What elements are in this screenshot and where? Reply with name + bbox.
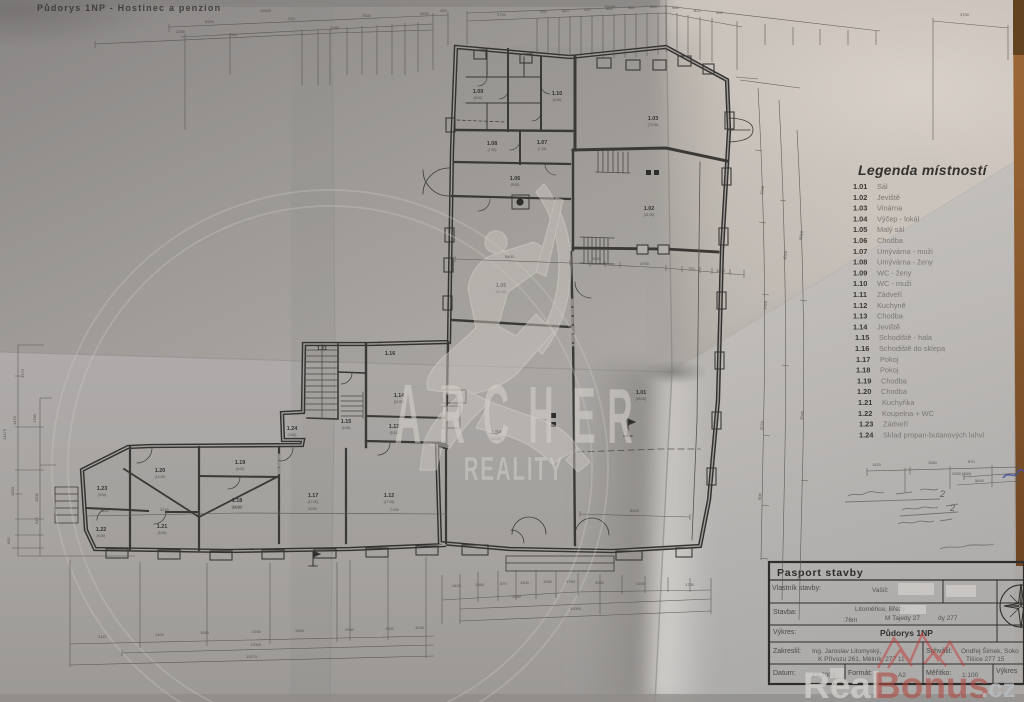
svg-text:1860: 1860 <box>10 486 15 496</box>
svg-text:1000: 1000 <box>592 256 602 261</box>
svg-text:C: C <box>483 367 510 461</box>
svg-text:(4.00): (4.00) <box>97 534 106 538</box>
svg-text:1.08: 1.08 <box>853 258 867 267</box>
svg-text:Chodba: Chodba <box>877 236 904 245</box>
svg-text:1.05: 1.05 <box>853 225 867 234</box>
svg-text:Jeviště: Jeviště <box>877 322 900 331</box>
svg-text:1750: 1750 <box>566 579 576 584</box>
svg-text:1500: 1500 <box>295 628 305 633</box>
svg-text:900: 900 <box>757 492 763 500</box>
svg-text:3700: 3700 <box>497 12 507 17</box>
svg-text:A: A <box>395 367 422 461</box>
svg-text:(72.00): (72.00) <box>648 123 659 127</box>
svg-text:1.01: 1.01 <box>636 390 647 396</box>
svg-text:900: 900 <box>716 10 723 15</box>
svg-text:Koupelna + WC: Koupelna + WC <box>882 409 935 418</box>
svg-text:Výkres:: Výkres: <box>773 629 796 636</box>
svg-text:1.23: 1.23 <box>97 486 108 492</box>
svg-text:Sál: Sál <box>877 182 888 191</box>
svg-text:(5.00): (5.00) <box>474 96 483 100</box>
svg-text:1.17: 1.17 <box>308 493 319 499</box>
svg-text:19520: 19520 <box>260 8 272 13</box>
svg-text:1.15: 1.15 <box>341 419 352 425</box>
svg-text:1.20: 1.20 <box>857 387 871 396</box>
svg-text:1.09: 1.09 <box>473 89 484 95</box>
svg-text:(6.00): (6.00) <box>236 467 245 471</box>
svg-text:5640: 5640 <box>975 478 985 483</box>
svg-text:1.06: 1.06 <box>510 176 521 182</box>
svg-text:(3.50): (3.50) <box>288 433 297 437</box>
svg-text:750: 750 <box>688 266 695 271</box>
svg-text:Vinárna: Vinárna <box>877 204 903 213</box>
svg-text:1.06: 1.06 <box>853 236 867 245</box>
svg-text:Vašíč: Vašíč <box>872 587 889 594</box>
svg-text:Kuchyňka: Kuchyňka <box>882 398 915 407</box>
svg-text:R: R <box>439 367 466 461</box>
svg-text:1540: 1540 <box>200 630 210 635</box>
svg-text:1.09: 1.09 <box>853 268 867 277</box>
svg-text:(3.00): (3.00) <box>98 493 107 497</box>
svg-text:620: 620 <box>694 8 701 13</box>
svg-text:1420: 1420 <box>872 462 882 467</box>
svg-text:1.03: 1.03 <box>853 204 867 213</box>
svg-text:Datum:: Datum: <box>773 670 796 677</box>
svg-text:2980: 2980 <box>345 627 355 632</box>
svg-text:R: R <box>607 372 632 460</box>
svg-text:1.02: 1.02 <box>853 193 867 202</box>
svg-text:1.02: 1.02 <box>644 206 655 212</box>
svg-text:930: 930 <box>288 16 295 21</box>
svg-text:WC - muži: WC - muži <box>877 279 912 288</box>
svg-text:1780: 1780 <box>32 413 37 423</box>
svg-text:2060: 2060 <box>595 580 605 585</box>
svg-text:Chodba: Chodba <box>877 312 904 321</box>
svg-text:Umývárna - ženy: Umývárna - ženy <box>877 258 933 267</box>
svg-text:5140: 5140 <box>796 570 802 580</box>
svg-text:17000: 17000 <box>250 642 262 647</box>
svg-text:1.11: 1.11 <box>853 290 867 299</box>
svg-text:1.16: 1.16 <box>385 351 396 357</box>
svg-text:H: H <box>528 370 553 461</box>
svg-text:Zádveří: Zádveří <box>883 420 909 429</box>
svg-text:2: 2 <box>949 503 955 513</box>
svg-text:Pasport stavby: Pasport stavby <box>777 567 863 579</box>
svg-text:Sklad propan-butanových lahví: Sklad propan-butanových lahví <box>883 430 985 439</box>
svg-text:1.10: 1.10 <box>552 91 563 97</box>
svg-text:1.15: 1.15 <box>855 333 869 342</box>
svg-text:Půdorys 1NP - Hostinec a penzi: Půdorys 1NP - Hostinec a penzion <box>37 3 221 13</box>
svg-text:(17.00): (17.00) <box>308 500 319 504</box>
svg-text:660: 660 <box>562 8 569 13</box>
svg-text:1.10: 1.10 <box>853 279 867 288</box>
svg-text:Vlastník stavby:: Vlastník stavby: <box>772 585 821 592</box>
svg-text:M Tajedy 27: M Tajedy 27 <box>885 615 920 622</box>
svg-text:1.24: 1.24 <box>859 430 874 439</box>
svg-text:7100: 7100 <box>390 507 400 512</box>
svg-text:1.21: 1.21 <box>157 524 168 530</box>
svg-text:Půdorys 1NP: Půdorys 1NP <box>880 628 933 638</box>
svg-text:1640: 1640 <box>100 508 110 513</box>
svg-text:Výčep - lokál: Výčep - lokál <box>877 214 920 223</box>
svg-text:1.21: 1.21 <box>858 398 872 407</box>
svg-text:Ondřej Šimek, Soko: Ondřej Šimek, Soko <box>961 646 1019 655</box>
svg-text:1.11: 1.11 <box>317 346 327 352</box>
svg-text:7500: 7500 <box>362 13 372 18</box>
svg-text:1400: 1400 <box>155 632 165 637</box>
svg-text:(9.00): (9.00) <box>158 531 167 535</box>
svg-text:Malý sál: Malý sál <box>877 225 904 234</box>
svg-text:1.17: 1.17 <box>856 355 870 364</box>
svg-text:dy 277: dy 277 <box>938 615 958 622</box>
svg-text:1000: 1000 <box>34 492 39 502</box>
svg-text:2160: 2160 <box>252 629 262 634</box>
svg-text:1.08: 1.08 <box>487 141 498 147</box>
svg-text:E: E <box>572 372 596 461</box>
svg-text:400: 400 <box>440 8 447 13</box>
svg-text:Legenda místností: Legenda místností <box>858 162 989 178</box>
svg-text:3110: 3110 <box>98 634 107 639</box>
svg-text:1400: 1400 <box>520 580 530 585</box>
svg-text:1.07: 1.07 <box>853 247 867 256</box>
svg-text:1500: 1500 <box>385 626 395 631</box>
svg-text:(7.50): (7.50) <box>488 148 497 152</box>
svg-text:1.18: 1.18 <box>856 366 870 375</box>
svg-text:Chodba: Chodba <box>881 387 908 396</box>
svg-text:(7.10): (7.10) <box>538 147 547 151</box>
svg-text:720: 720 <box>230 32 237 37</box>
svg-text:1.01: 1.01 <box>853 182 867 191</box>
svg-text:1560: 1560 <box>928 460 938 465</box>
svg-text:2530: 2530 <box>420 11 430 16</box>
svg-text:945: 945 <box>34 517 39 524</box>
svg-text:870: 870 <box>500 581 507 586</box>
svg-text:600: 600 <box>6 537 11 544</box>
svg-text:1470: 1470 <box>12 415 17 425</box>
svg-text:3240: 3240 <box>160 507 170 512</box>
svg-text:1.13: 1.13 <box>853 312 867 321</box>
svg-text:1.12: 1.12 <box>853 301 867 310</box>
svg-text:2280: 2280 <box>176 29 186 34</box>
svg-text:(14.00): (14.00) <box>155 475 166 479</box>
svg-text:900: 900 <box>672 5 679 10</box>
svg-text:Zádveří: Zádveří <box>877 290 903 299</box>
svg-text:3170: 3170 <box>20 368 25 378</box>
svg-text:8400: 8400 <box>630 508 640 513</box>
svg-text:4700: 4700 <box>640 261 650 266</box>
svg-text:(9.00): (9.00) <box>511 183 520 187</box>
svg-text:(41.00): (41.00) <box>644 213 655 217</box>
svg-text:1.19: 1.19 <box>857 376 871 385</box>
svg-text:Bonus: Bonus <box>874 665 989 702</box>
svg-text:Tišice 277 15: Tišice 277 15 <box>966 656 1005 663</box>
svg-text:Pokoj: Pokoj <box>880 366 899 375</box>
svg-text:1.19: 1.19 <box>235 460 246 466</box>
svg-text:900: 900 <box>584 7 591 12</box>
svg-text:1.04: 1.04 <box>853 214 868 223</box>
svg-text:(17.00): (17.00) <box>384 500 395 504</box>
svg-text:870: 870 <box>968 459 975 464</box>
svg-text:WC - ženy: WC - ženy <box>877 268 912 277</box>
svg-text::76m: :76m <box>843 617 857 624</box>
svg-text:7980: 7980 <box>330 25 340 30</box>
svg-text:1.22: 1.22 <box>858 409 872 418</box>
svg-text:(5.00): (5.00) <box>342 426 351 430</box>
svg-text:1.07: 1.07 <box>537 140 548 146</box>
svg-text:Schodiště do sklepa: Schodiště do sklepa <box>879 344 946 353</box>
svg-text:1.16: 1.16 <box>855 344 869 353</box>
svg-text:5400: 5400 <box>505 254 515 259</box>
svg-text:6200: 6200 <box>205 19 215 24</box>
svg-text:14170: 14170 <box>2 428 7 440</box>
svg-text:Litoměřice, Březý: Litoměřice, Březý <box>855 606 906 613</box>
svg-text:Schodiště - hala: Schodiště - hala <box>879 333 933 342</box>
svg-text:Umývárna - muži: Umývárna - muži <box>877 247 933 256</box>
svg-text:1560: 1560 <box>475 582 485 587</box>
svg-text:19270: 19270 <box>246 654 258 659</box>
svg-text:1530: 1530 <box>543 579 553 584</box>
svg-text:(5.00): (5.00) <box>553 98 562 102</box>
svg-text:1730: 1730 <box>685 582 695 587</box>
svg-text:10000: 10000 <box>570 606 582 611</box>
svg-text:3250: 3250 <box>308 506 318 511</box>
svg-text:1.18: 1.18 <box>232 498 243 504</box>
svg-text:.cz: .cz <box>981 673 1016 702</box>
svg-text:3700: 3700 <box>960 12 970 17</box>
svg-text:2070: 2070 <box>759 420 765 430</box>
svg-text:900: 900 <box>628 5 635 10</box>
svg-text:2100: 2100 <box>636 581 646 586</box>
svg-text:2050 (850): 2050 (850) <box>952 471 972 476</box>
svg-text:1420: 1420 <box>452 583 462 588</box>
svg-text:9480: 9480 <box>512 594 522 599</box>
svg-text:1000: 1000 <box>716 268 726 273</box>
svg-text:900: 900 <box>540 9 547 14</box>
svg-text:Jeviště: Jeviště <box>877 193 900 202</box>
svg-text:1.24: 1.24 <box>287 426 298 432</box>
svg-text:Chodba: Chodba <box>881 376 908 385</box>
svg-text:3540: 3540 <box>799 410 805 420</box>
svg-text:620: 620 <box>650 4 657 9</box>
svg-text:Kuchyně: Kuchyně <box>877 301 906 310</box>
svg-text:1.03: 1.03 <box>648 116 659 122</box>
svg-text:Pokoj: Pokoj <box>880 355 899 364</box>
svg-text:Real: Real <box>803 665 881 702</box>
svg-text:1.20: 1.20 <box>155 468 166 474</box>
svg-text:Stavba:: Stavba: <box>773 609 797 616</box>
svg-text:REALITY: REALITY <box>464 450 564 487</box>
svg-text:1.14: 1.14 <box>853 322 868 331</box>
svg-text:(93.00): (93.00) <box>636 397 647 401</box>
svg-text:1.23: 1.23 <box>859 420 873 429</box>
svg-text:Ing. Jaroslav Litomyský,: Ing. Jaroslav Litomyský, <box>812 648 882 655</box>
svg-text:1.22: 1.22 <box>96 527 107 533</box>
svg-text:2: 2 <box>939 489 945 499</box>
svg-text:1800: 1800 <box>232 505 242 510</box>
svg-text:Zakreslil:: Zakreslil: <box>773 648 801 655</box>
svg-text:1.12: 1.12 <box>384 493 395 499</box>
svg-text:660: 660 <box>606 6 613 11</box>
svg-text:1630: 1630 <box>415 625 425 630</box>
